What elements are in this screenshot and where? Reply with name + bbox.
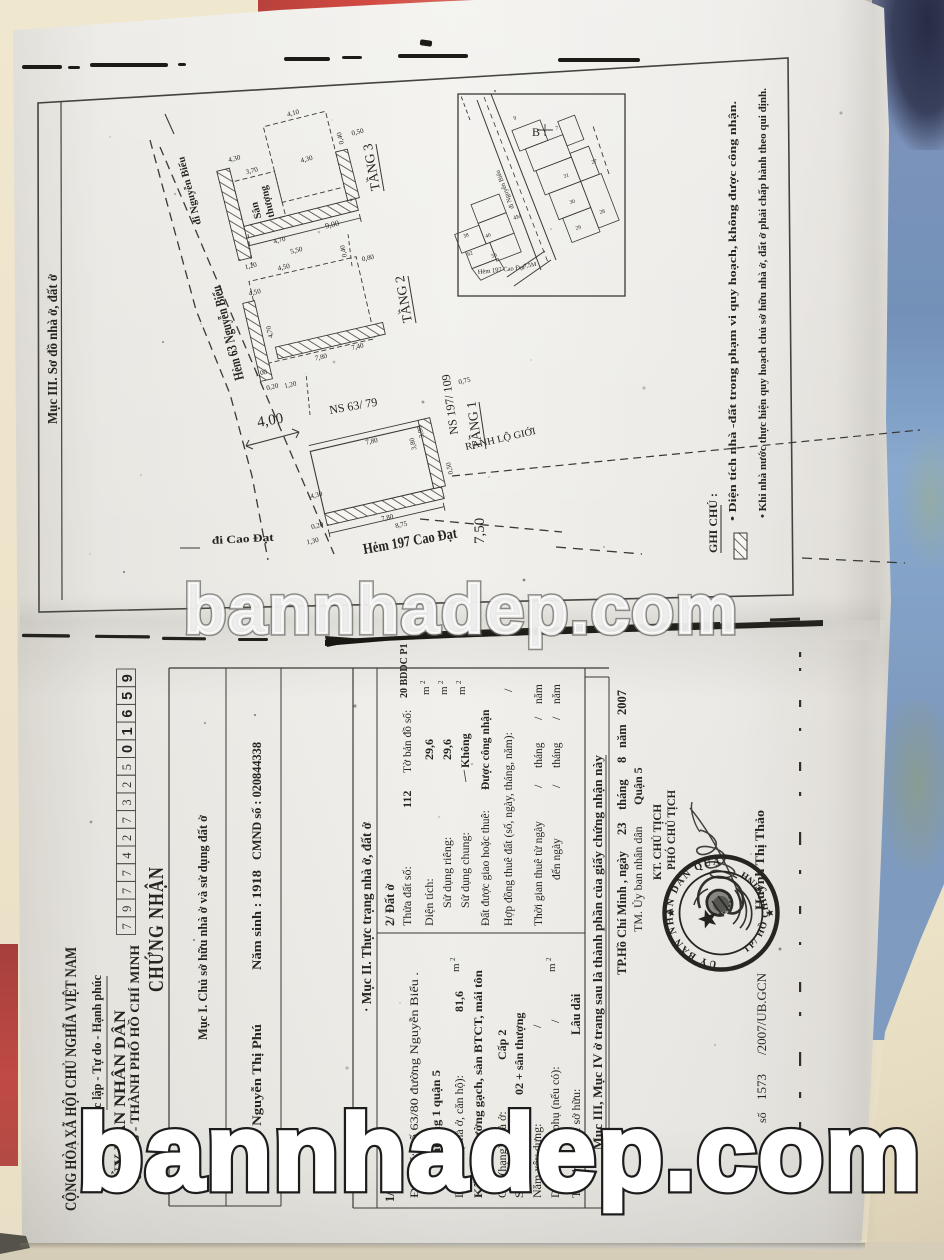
svg-text:9: 9 (120, 906, 134, 912)
svg-text:Sử dụng chung:: Sử dụng chung: (458, 832, 472, 908)
svg-text:112: 112 (400, 791, 414, 808)
svg-text:Quận 5: Quận 5 (631, 767, 645, 805)
svg-text:m: m (438, 686, 450, 695)
svg-text:2: 2 (449, 957, 457, 961)
svg-text:7,50: 7,50 (472, 518, 488, 544)
svg-text:5: 5 (120, 764, 134, 770)
svg-text:Năm sinh : 1918: Năm sinh : 1918 (249, 869, 264, 970)
svg-text:• Khi nhà nước thực hiện quy h: • Khi nhà nước thực hiện quy hoạch chủ s… (758, 88, 769, 518)
svg-text:· Mục II. Thực trạng nhà ở, đấ: · Mục II. Thực trạng nhà ở, đất ở (359, 821, 374, 1012)
svg-text:Được công nhận: Được công nhận (480, 709, 492, 790)
svg-text:Đất được giao hoặc thuê:: Đất được giao hoặc thuê: (479, 810, 492, 926)
svg-text:B: B (532, 125, 540, 139)
svg-text:2: 2 (455, 680, 463, 684)
svg-text:TM. Ủy ban nhân dân: TM. Ủy ban nhân dân (631, 826, 645, 932)
svg-text:Thời gian thuê từ ngày: Thời gian thuê từ ngày (533, 821, 545, 926)
svg-text:KT. CHỦ TỊCH: KT. CHỦ TỊCH (650, 803, 664, 880)
svg-text:GHI CHÚ :: GHI CHÚ : (706, 493, 720, 553)
svg-text:m: m (456, 686, 468, 695)
svg-text:Diện tích:: Diện tích: (422, 878, 436, 926)
svg-text:7: 7 (120, 888, 134, 894)
svg-text:CMND số : 020844338: CMND số : 020844338 (249, 742, 264, 860)
svg-text:Tờ bản đồ số:: Tờ bản đồ số: (401, 710, 414, 773)
svg-text:02 + sân thượng: 02 + sân thượng (512, 1013, 526, 1095)
svg-text:81,6: 81,6 (452, 991, 466, 1012)
svg-text:2: 2 (545, 957, 553, 961)
svg-text:1: 1 (120, 727, 136, 735)
svg-text:2: 2 (120, 835, 134, 841)
svg-text:7: 7 (120, 923, 134, 929)
svg-text:tháng: tháng (551, 742, 563, 768)
svg-text:đến ngày: đến ngày (550, 838, 563, 880)
svg-text:/2007/UB.GCN: /2007/UB.GCN (754, 972, 769, 1055)
svg-text:2007: 2007 (615, 690, 629, 715)
svg-text:9: 9 (120, 674, 136, 682)
svg-text:2: 2 (437, 680, 445, 684)
svg-text:Thửa đất số:: Thửa đất số: (400, 866, 414, 926)
svg-text:7: 7 (120, 817, 134, 823)
svg-text:2: 2 (419, 680, 427, 684)
svg-text:năm: năm (615, 724, 629, 748)
svg-text:năm: năm (551, 684, 563, 704)
svg-text:Không: Không (458, 733, 472, 768)
svg-text:29,6: 29,6 (422, 739, 436, 760)
svg-text:tháng: tháng (615, 779, 629, 810)
svg-text:Mục I. Chủ sở hữu nhà ở và sử: Mục I. Chủ sở hữu nhà ở và sử dụng đất ở (195, 814, 210, 1040)
svg-text:2/ Đất ở: 2/ Đất ở (383, 884, 397, 926)
svg-text:8: 8 (615, 757, 629, 763)
svg-text:0: 0 (120, 745, 136, 753)
svg-text:PHÓ CHỦ TỊCH: PHÓ CHỦ TỊCH (664, 789, 678, 870)
svg-text:29,6: 29,6 (440, 739, 454, 760)
svg-text:Lâu dài: Lâu dài (569, 993, 583, 1035)
svg-text:Sử dụng riêng:: Sử dụng riêng: (440, 837, 454, 908)
svg-text:tháng: tháng (533, 742, 545, 768)
svg-text:7: 7 (120, 870, 134, 876)
svg-text:20 BDDC P1: 20 BDDC P1 (399, 644, 410, 698)
svg-text:CHỨNG NHẬN: CHỨNG NHẬN (144, 866, 168, 992)
svg-text:Hợp đồng thuê đất (số, ngày, t: Hợp đồng thuê đất (số, ngày, tháng, năm)… (502, 732, 515, 926)
svg-text:2: 2 (120, 782, 134, 788)
svg-text:5: 5 (120, 692, 136, 700)
svg-text:• Diện tích nhà -đất trong phạ: • Diện tích nhà -đất trong phạm vi quy h… (728, 101, 739, 521)
svg-text:m: m (450, 963, 462, 972)
svg-text:m: m (420, 686, 432, 695)
svg-text:4: 4 (120, 852, 134, 859)
svg-text:m: m (546, 963, 558, 972)
svg-text:3: 3 (120, 799, 134, 805)
svg-text:TP.Hồ Chí Minh , ngày: TP.Hồ Chí Minh , ngày (615, 850, 629, 975)
svg-text:6: 6 (120, 710, 136, 718)
svg-text:23: 23 (615, 823, 629, 836)
svg-text:năm: năm (533, 684, 545, 704)
svg-text:Cấp 2: Cấp 2 (495, 1030, 509, 1060)
svg-text:Mục III. Sơ đồ nhà ở, đất ở: Mục III. Sơ đồ nhà ở, đất ở (45, 274, 60, 424)
